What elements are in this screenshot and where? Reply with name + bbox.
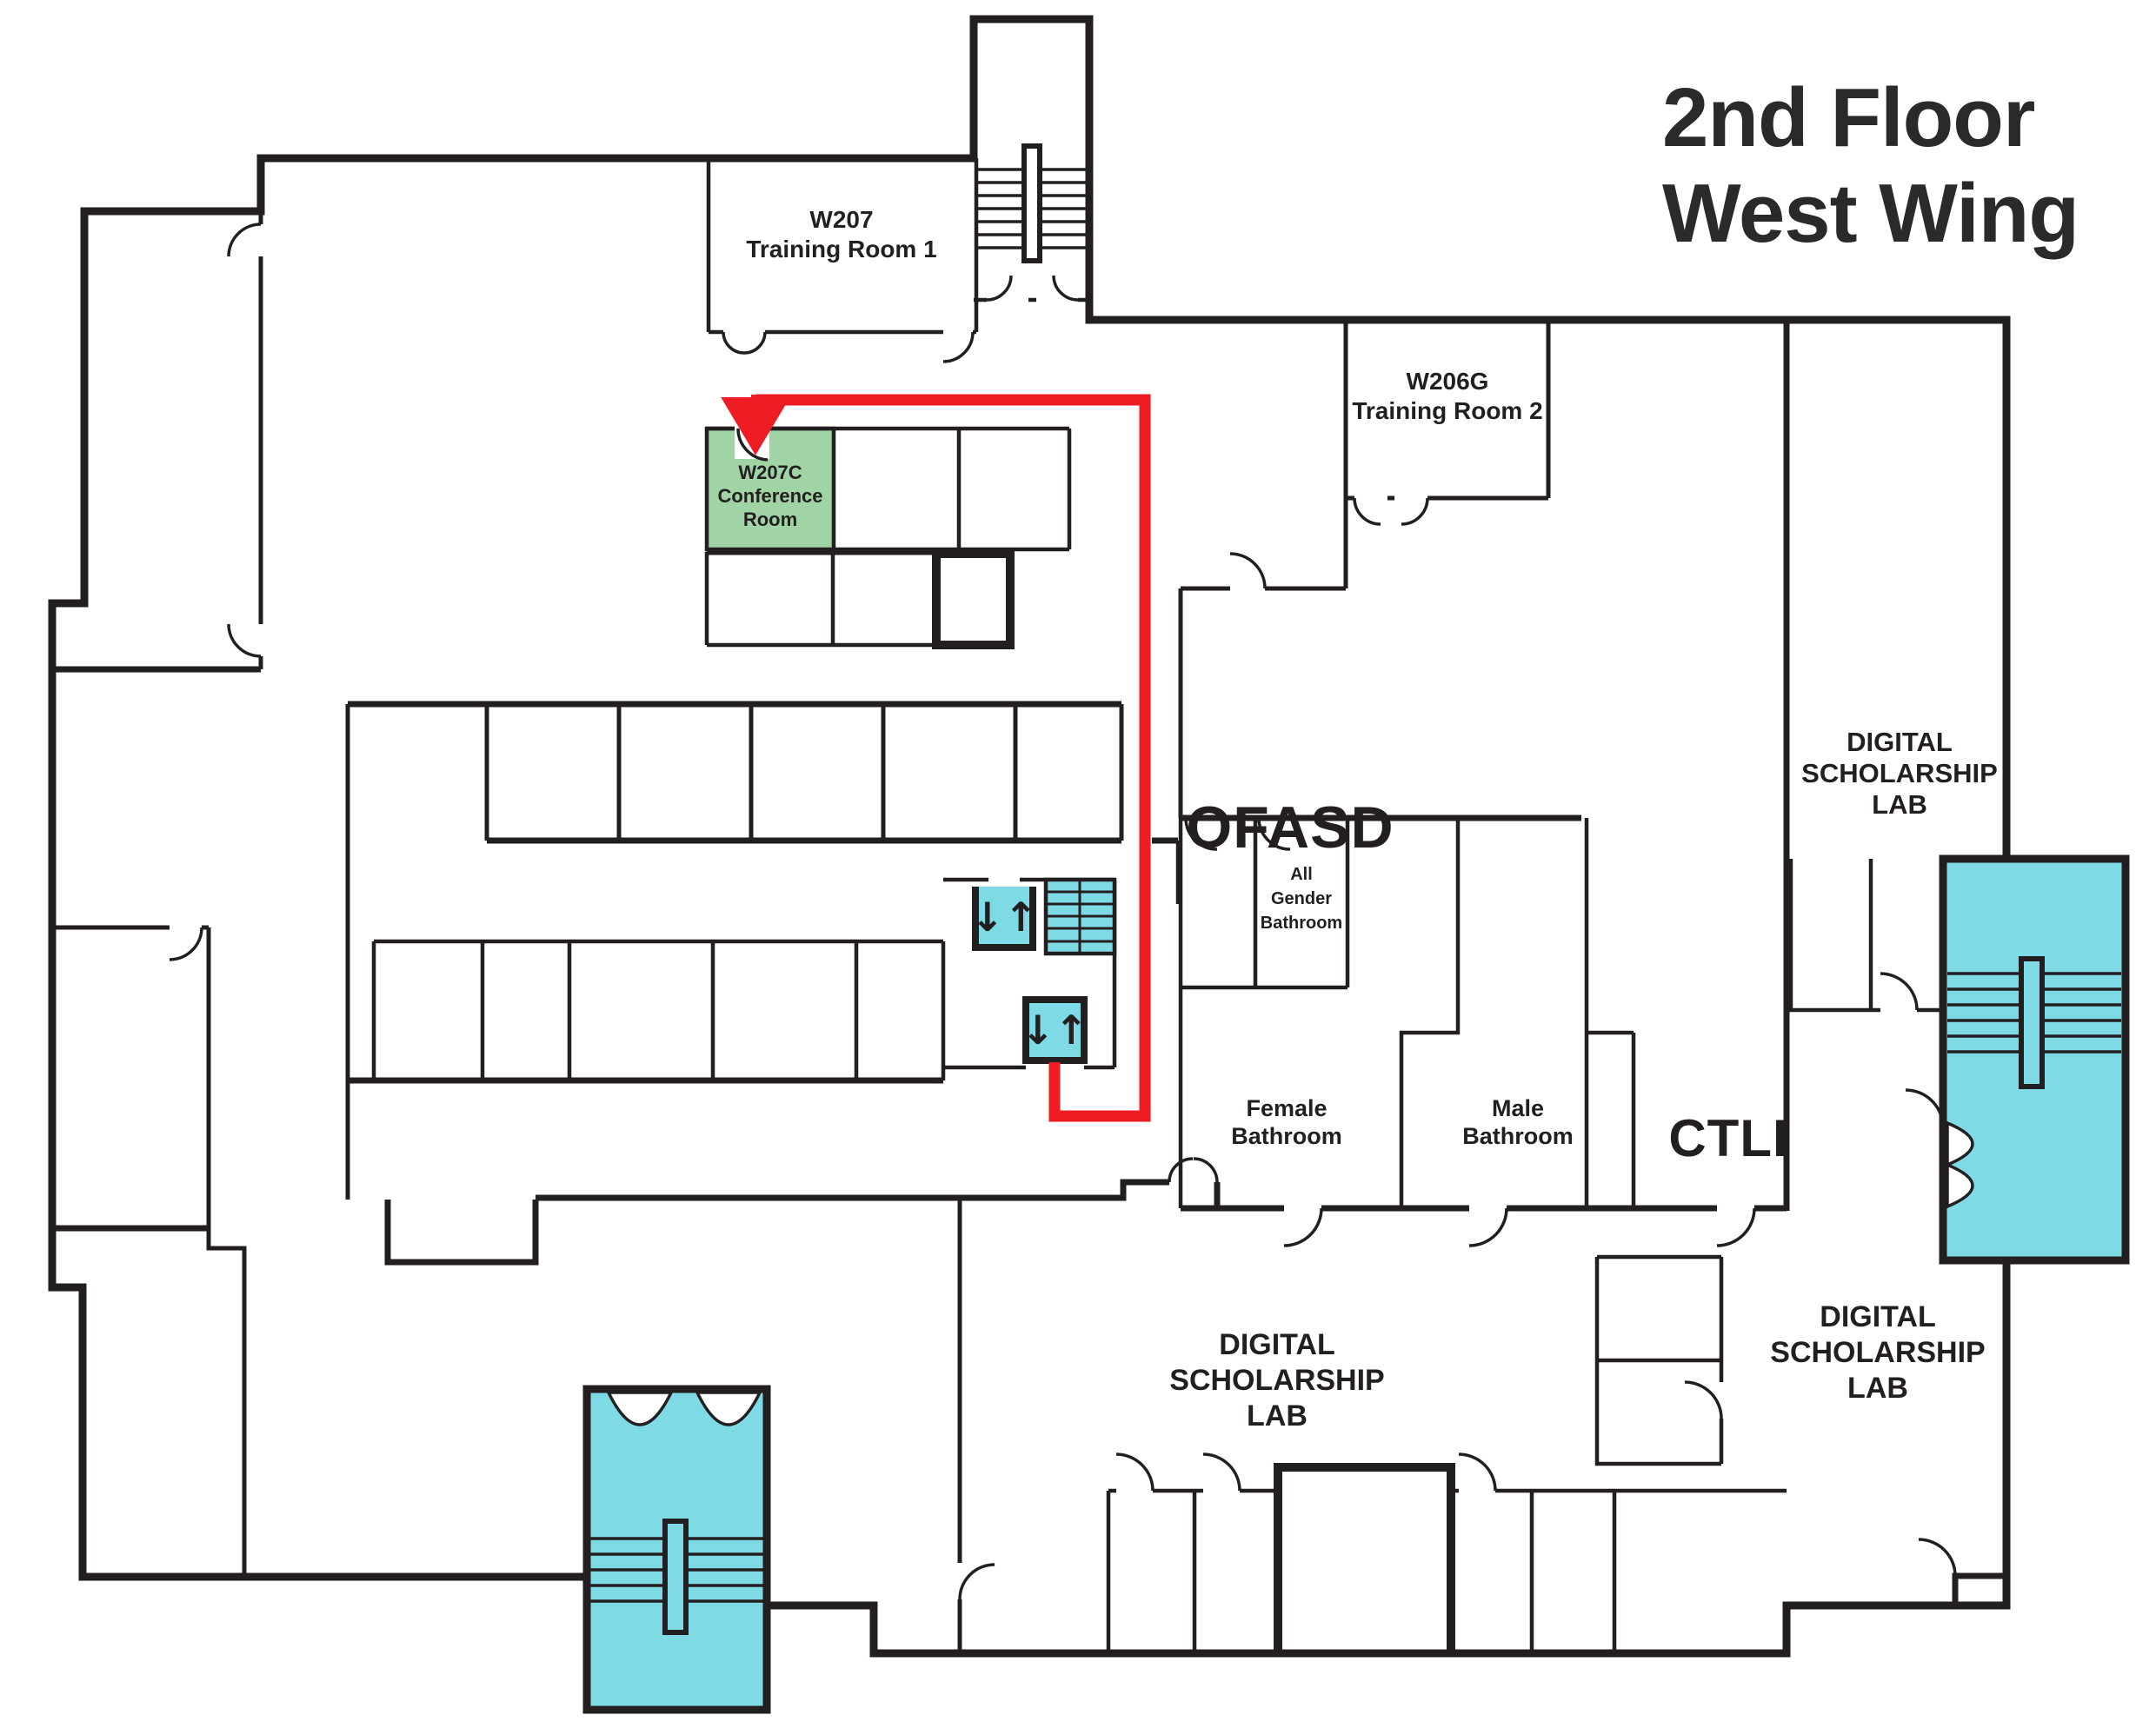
label-ctli: CTLI <box>1668 1109 1787 1167</box>
label-dsl-right: DIGITAL <box>1847 727 1953 757</box>
elevator-arrows-icon: ↓↑ <box>970 894 1037 941</box>
stair-tower-top <box>977 146 1086 300</box>
label-dsl-bottom-right: SCHOLARSHIP <box>1770 1336 1985 1369</box>
interior-walls-medium <box>50 320 2005 1605</box>
page-title: West Wing <box>1662 167 2079 260</box>
stair-mini-cluster <box>1046 880 1115 954</box>
label-dsl-bottom-center: DIGITAL <box>1219 1328 1334 1361</box>
label-w207c: W207C <box>738 462 802 483</box>
stair-right <box>1943 859 2126 1260</box>
label-all-gender: All <box>1290 865 1313 884</box>
label-all-gender: Bathroom <box>1261 914 1342 933</box>
label-female-bathroom: Female <box>1246 1095 1327 1121</box>
label-dsl-bottom-center: SCHOLARSHIP <box>1169 1364 1384 1397</box>
outer-walls <box>52 19 2126 1710</box>
label-w207: Training Room 1 <box>746 236 936 263</box>
elevator-lower: ↓↑ <box>1021 1000 1088 1060</box>
label-dsl-bottom-right: LAB <box>1847 1372 1908 1405</box>
page-title: 2nd Floor <box>1662 71 2034 164</box>
label-dsl-bottom-center: LAB <box>1247 1399 1308 1433</box>
label-male-bathroom: Bathroom <box>1462 1123 1574 1149</box>
label-ofasd: OFASD <box>1186 794 1394 861</box>
label-dsl-bottom-right: DIGITAL <box>1820 1300 1935 1333</box>
label-w207: W207 <box>809 206 873 233</box>
stair-bottom-left <box>587 1389 767 1710</box>
label-w207c: Conference <box>717 485 822 507</box>
floor-plan-page: ↓↑ ↓↑ <box>0 0 2156 1735</box>
label-w206g: W206G <box>1407 368 1489 395</box>
label-dsl-right: SCHOLARSHIP <box>1801 758 1998 788</box>
label-w207c: Room <box>743 509 797 530</box>
label-w206g: Training Room 2 <box>1352 397 1542 424</box>
label-female-bathroom: Bathroom <box>1231 1123 1342 1149</box>
label-dsl-right: LAB <box>1872 789 1927 820</box>
elevator-upper: ↓↑ <box>970 887 1037 947</box>
elevator-arrows-icon: ↓↑ <box>1021 1007 1088 1054</box>
labels: 2nd Floor West Wing W207 Training Room 1… <box>717 71 2079 1433</box>
label-all-gender: Gender <box>1271 889 1332 908</box>
label-male-bathroom: Male <box>1492 1095 1544 1121</box>
floor-plan-svg: ↓↑ ↓↑ <box>0 0 2156 1735</box>
